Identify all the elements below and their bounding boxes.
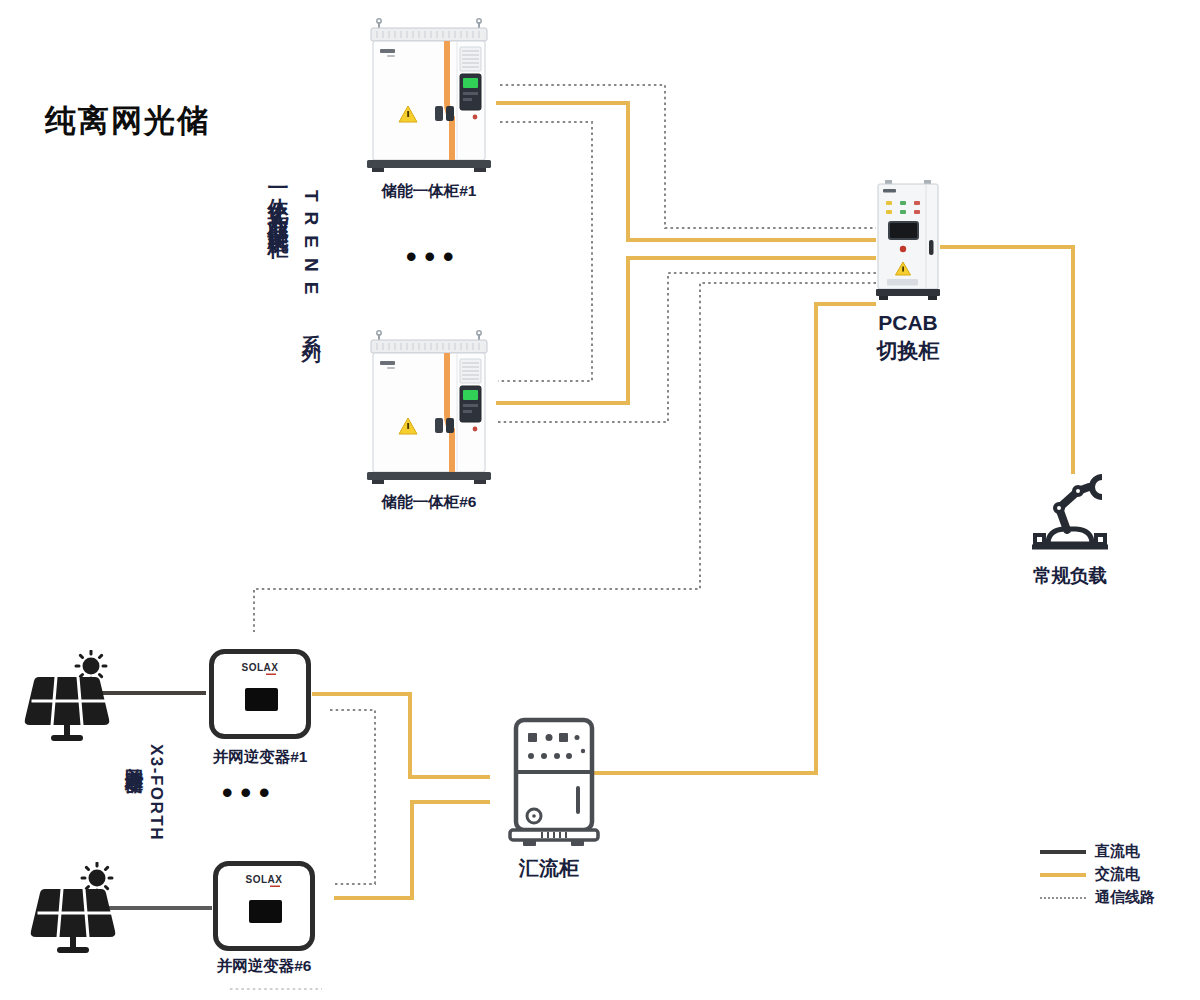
pcab-name: PCAB	[846, 309, 970, 337]
legend-row-ac: 交流电	[1040, 863, 1155, 886]
load-label: 常规负载	[1010, 563, 1130, 588]
page-title: 纯离网光储	[45, 100, 210, 142]
storage-cabinet-1-icon	[363, 14, 495, 174]
inverter-1-label: 并网逆变器#1	[190, 747, 330, 768]
legend-ac-label: 交流电	[1095, 865, 1140, 884]
wire-comm-pcab-to-inverter1	[254, 283, 876, 632]
pcab-cabinet-icon	[876, 180, 940, 302]
legend-row-dc: 直流电	[1040, 840, 1155, 863]
combiner-cabinet-icon	[508, 716, 600, 848]
inverter-ellipsis-dots: •••	[222, 776, 278, 810]
inverter-logo: SOLAX	[246, 874, 283, 885]
combiner-label: 汇流柜	[474, 855, 624, 882]
legend-comm-line-swatch	[1040, 897, 1086, 899]
solar-panel-6-icon	[28, 862, 122, 956]
legend-ac-line-swatch	[1040, 873, 1086, 877]
wire-ac-combiner-to-pcab	[594, 304, 876, 773]
storage-cabinet-6-icon	[363, 326, 495, 486]
wire-comm-cabinet6-to-pcab	[498, 273, 876, 422]
storage-series-vertical-label: TRENE 系列	[298, 190, 324, 340]
storage-cabinet-1-label: 储能一体柜#1	[349, 181, 509, 202]
pcab-label: PCAB 切换柜	[846, 309, 970, 365]
legend-dc-line-swatch	[1040, 850, 1086, 854]
legend-comm-label: 通信线路	[1095, 888, 1155, 907]
inverter-1-icon: SOLAX	[208, 648, 312, 740]
legend: 直流电 交流电 通信线路	[1040, 840, 1155, 909]
robot-arm-icon	[1026, 466, 1114, 560]
wire-ac-inverter6-to-combiner	[334, 802, 490, 898]
wire-comm-cabinet1-to-cabinet6	[498, 122, 592, 381]
wire-ac-cabinet1-to-pcab	[496, 103, 876, 240]
legend-row-comm: 通信线路	[1040, 886, 1155, 909]
storage-cabinet-6-label: 储能一体柜#6	[349, 492, 509, 513]
pcab-type: 切换柜	[846, 337, 970, 365]
storage-product-vertical-label: 一体化工商业储能机柜	[264, 176, 292, 226]
wire-comm-inverter1-to-inverter6	[330, 710, 375, 884]
inverter-6-icon: SOLAX	[212, 860, 316, 952]
storage-ellipsis-dots: •••	[406, 240, 462, 274]
wire-comm-cabinet1-to-pcab	[500, 85, 876, 228]
inverter-6-label: 并网逆变器#6	[194, 956, 334, 977]
inverter-logo: SOLAX	[242, 662, 279, 673]
wire-ac-inverter1-to-combiner	[312, 694, 490, 777]
pv-product-vertical-label: 并网逆变器	[121, 752, 147, 762]
legend-dc-label: 直流电	[1095, 842, 1140, 861]
wiring-layer	[0, 0, 1200, 1000]
solar-panel-1-icon	[22, 650, 116, 744]
diagram-canvas: 纯离网光储 一体化工商业储能机柜 TRENE 系列 并网逆变器 X3-FORTH…	[0, 0, 1200, 1000]
pv-series-vertical-label: X3-FORTH	[146, 744, 166, 841]
